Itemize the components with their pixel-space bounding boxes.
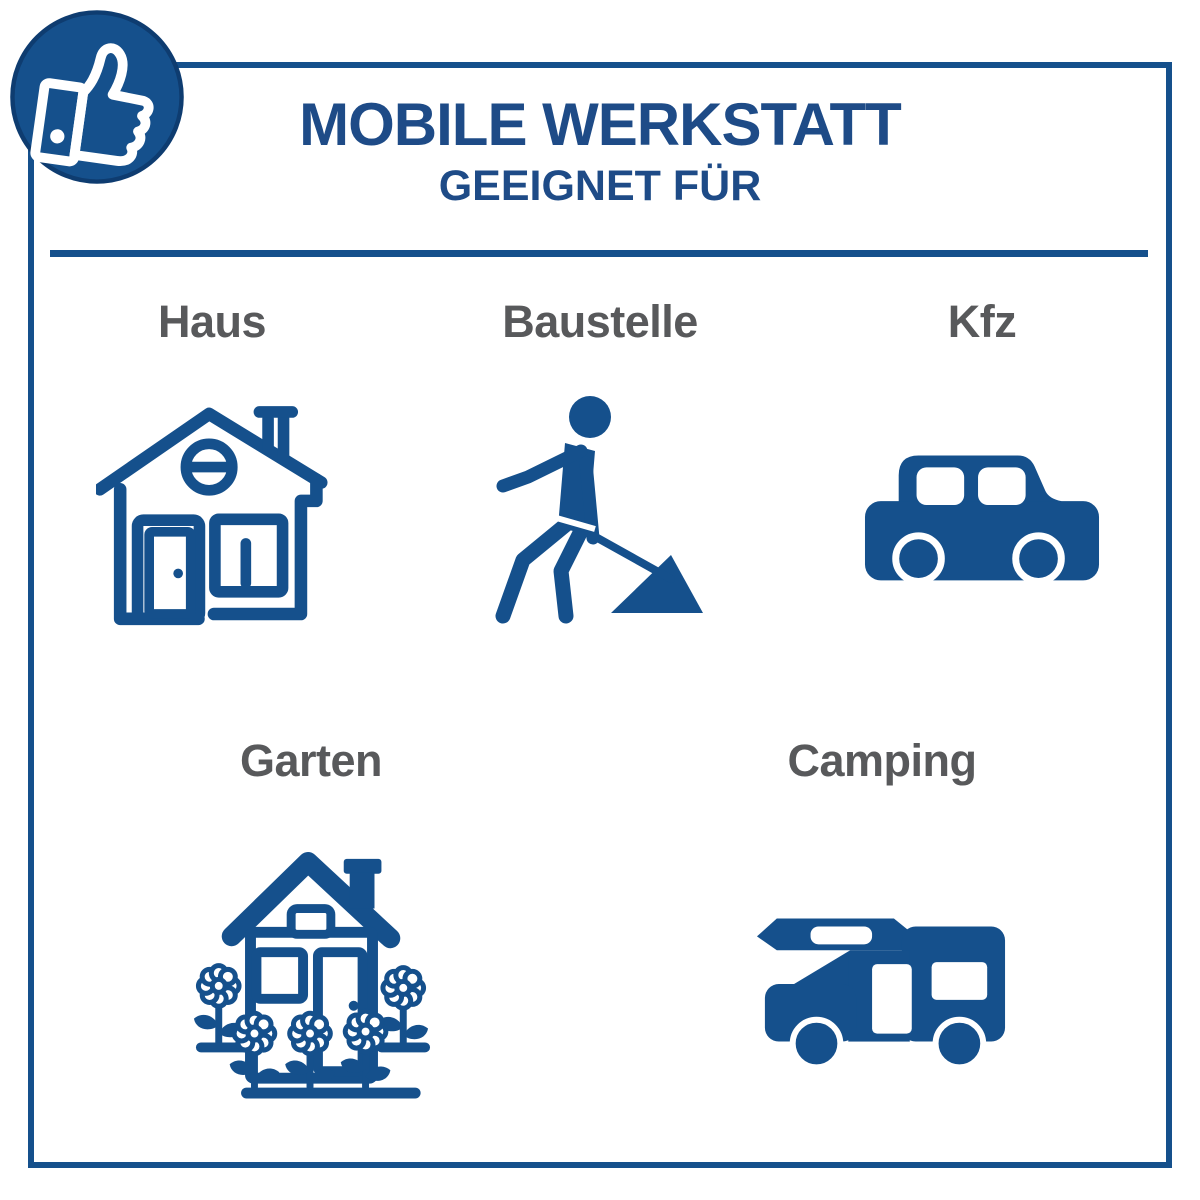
category-kfz: Kfz xyxy=(862,296,1102,585)
category-label: Haus xyxy=(158,296,266,348)
construction-worker-icon xyxy=(495,395,705,635)
house-icon xyxy=(96,385,328,640)
category-camping: Camping xyxy=(752,735,1012,1072)
category-label: Camping xyxy=(787,735,976,787)
category-label: Baustelle xyxy=(502,296,698,348)
car-icon xyxy=(863,437,1101,585)
infographic-page: MOBILE WERKSTATT GEEIGNET FÜR Haus xyxy=(0,0,1200,1200)
thumbs-up-icon xyxy=(8,8,186,186)
category-haus: Haus xyxy=(92,296,332,640)
category-baustelle: Baustelle xyxy=(480,296,720,635)
thumbs-up-badge xyxy=(8,8,186,186)
category-garten: Garten xyxy=(187,735,435,1103)
divider-line xyxy=(50,250,1148,257)
garden-house-icon xyxy=(187,845,435,1103)
category-label: Kfz xyxy=(948,296,1016,348)
category-label: Garten xyxy=(240,735,382,787)
camper-van-icon xyxy=(753,898,1011,1072)
